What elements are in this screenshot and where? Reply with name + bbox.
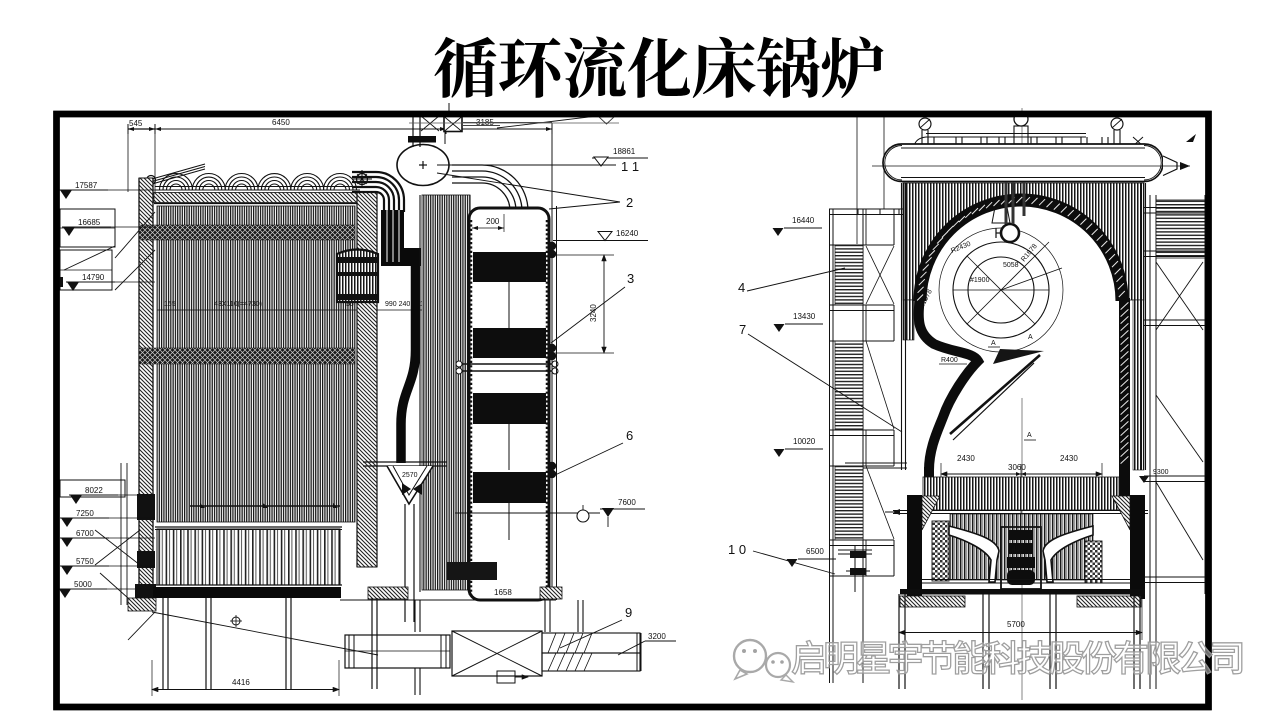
svg-text:7250: 7250 — [76, 509, 94, 518]
svg-text:7: 7 — [739, 322, 746, 337]
svg-text:545: 545 — [129, 119, 143, 128]
svg-text:6: 6 — [626, 428, 633, 443]
svg-text:16685: 16685 — [78, 218, 101, 227]
svg-text:3060: 3060 — [1008, 463, 1026, 472]
svg-text:10020: 10020 — [793, 437, 816, 446]
svg-text:5750: 5750 — [76, 557, 94, 566]
svg-text:A: A — [1028, 334, 1033, 341]
svg-text:43X110(=4730): 43X110(=4730) — [214, 301, 262, 308]
svg-text:990 240 1010: 990 240 1010 — [385, 301, 428, 308]
svg-text:8022: 8022 — [85, 486, 103, 495]
svg-text:14790: 14790 — [82, 273, 105, 282]
svg-text:17587: 17587 — [75, 181, 98, 190]
svg-text:7600: 7600 — [618, 498, 636, 507]
svg-text:1658: 1658 — [494, 588, 512, 597]
svg-text:4416: 4416 — [232, 678, 250, 687]
svg-text:6450: 6450 — [272, 118, 290, 127]
svg-text:4: 4 — [738, 280, 745, 295]
svg-text:5058: 5058 — [1003, 262, 1019, 269]
svg-text:9300: 9300 — [1153, 469, 1169, 476]
svg-text:2: 2 — [626, 195, 633, 210]
svg-text:2430: 2430 — [957, 454, 975, 463]
svg-text:18861: 18861 — [613, 147, 636, 156]
svg-text:6700: 6700 — [76, 529, 94, 538]
svg-text:5000: 5000 — [74, 580, 92, 589]
svg-text:155: 155 — [164, 301, 176, 308]
svg-text:1 0: 1 0 — [728, 542, 746, 557]
svg-text:2430: 2430 — [1060, 454, 1078, 463]
svg-text:2570: 2570 — [402, 472, 418, 479]
svg-text:3200: 3200 — [648, 632, 666, 641]
svg-text:#1900: #1900 — [970, 277, 990, 284]
svg-text:200: 200 — [486, 217, 500, 226]
svg-text:3: 3 — [627, 271, 634, 286]
svg-text:400: 400 — [1012, 546, 1024, 553]
svg-text:9: 9 — [625, 605, 632, 620]
svg-text:16440: 16440 — [792, 216, 815, 225]
svg-text:A: A — [991, 340, 996, 347]
svg-text:13430: 13430 — [793, 312, 816, 321]
svg-text:5700: 5700 — [1007, 620, 1025, 629]
svg-text:A: A — [1027, 432, 1032, 439]
svg-text:6500: 6500 — [806, 547, 824, 556]
svg-text:R400: R400 — [941, 357, 958, 364]
svg-text:1 1: 1 1 — [621, 159, 639, 174]
svg-text:16240: 16240 — [616, 229, 639, 238]
